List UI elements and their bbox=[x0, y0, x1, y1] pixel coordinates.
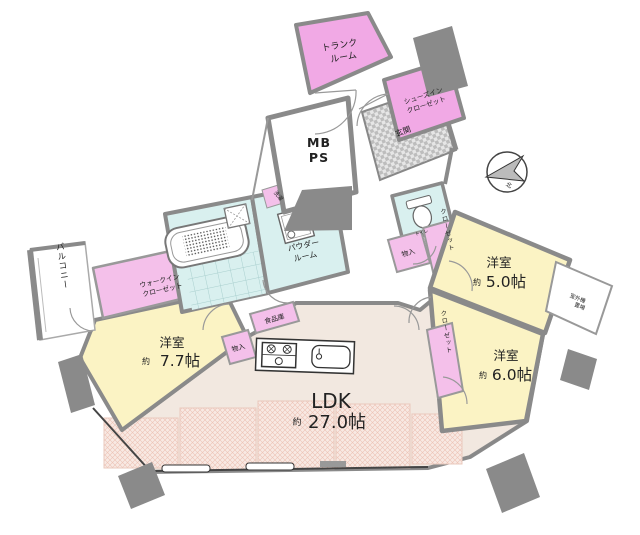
compass: 北 bbox=[486, 152, 527, 192]
window-1 bbox=[162, 465, 210, 472]
ldk-approx: 約 bbox=[292, 416, 301, 428]
wall-segment bbox=[320, 461, 346, 467]
room-7-size: 7.7帖 bbox=[160, 352, 200, 370]
meter-box-label-1: MB bbox=[307, 135, 331, 150]
meter-box-label-2: PS bbox=[309, 150, 329, 165]
room-5-size: 5.0帖 bbox=[486, 273, 526, 291]
room-5-approx: 約 bbox=[473, 277, 481, 287]
ldk-size: 27.0帖 bbox=[308, 412, 366, 433]
floor-plan-svg: 北 トランク ルーム シューズイン クローゼット 玄関 MB PS トイレ 物入… bbox=[0, 0, 640, 535]
pillar-bottom-right bbox=[486, 453, 540, 513]
room-7-approx: 約 bbox=[142, 356, 150, 366]
room-6-approx: 約 bbox=[479, 370, 487, 380]
pillar-right bbox=[560, 349, 597, 390]
sink-icon bbox=[312, 345, 351, 368]
bath-counter-icon bbox=[224, 204, 250, 228]
window-2 bbox=[246, 463, 294, 470]
room-5-name: 洋室 bbox=[486, 255, 511, 270]
trunk-door-leaf bbox=[315, 90, 356, 93]
floor-plan: 北 トランク ルーム シューズイン クローゼット 玄関 MB PS トイレ 物入… bbox=[0, 0, 640, 535]
room-7-name: 洋室 bbox=[159, 335, 184, 350]
room-6-size: 6.0帖 bbox=[492, 366, 532, 384]
room-6-name: 洋室 bbox=[493, 348, 518, 363]
hall-left-wall bbox=[252, 118, 268, 200]
ldk-name: LDK bbox=[311, 389, 352, 413]
stove-icon bbox=[262, 343, 297, 368]
kitchen-counter bbox=[255, 338, 354, 373]
